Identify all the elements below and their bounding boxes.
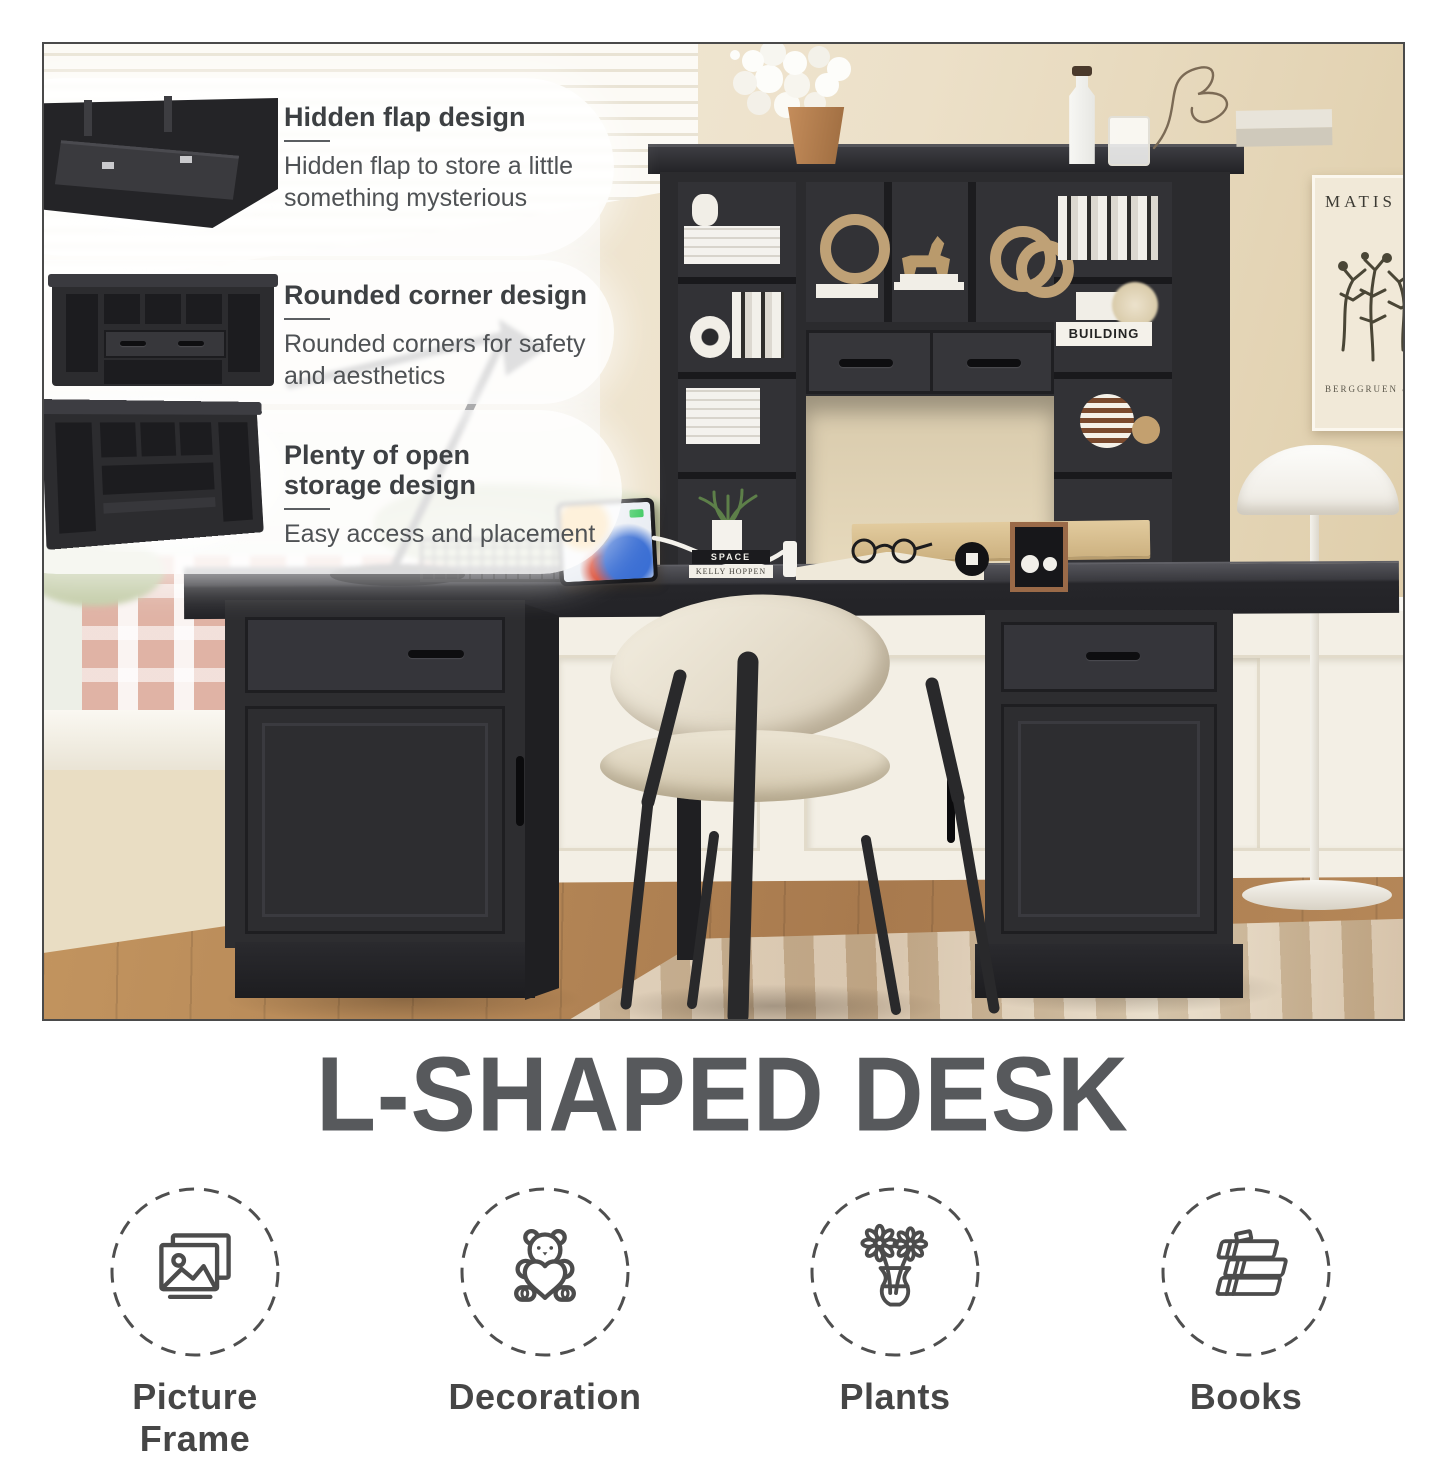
chair-frame <box>564 584 1024 1020</box>
feature-picture-frame: Picture Frame <box>75 1186 315 1460</box>
matisse-poster: MATIS BERGGRUEN & <box>1312 175 1405 431</box>
donut-vase <box>690 316 730 358</box>
babys-breath-flowers <box>730 50 740 60</box>
thumbnail-rounded-corner <box>44 268 282 392</box>
dashed-circle <box>809 1186 981 1358</box>
feature-plants: Plants <box>775 1186 1015 1418</box>
poster-subtitle: BERGGRUEN & <box>1325 384 1405 394</box>
charger-plug <box>783 541 797 577</box>
page-title: L-SHAPED DESK <box>22 1035 1424 1156</box>
divider <box>284 508 330 510</box>
drawer-handle <box>408 650 464 658</box>
stacked-books <box>1236 109 1332 129</box>
dashed-circle <box>459 1186 631 1358</box>
hinge <box>180 156 192 163</box>
callout-title: Plenty of open storage design <box>284 440 619 500</box>
callout-body: Rounded corners for safety and aesthetic… <box>284 329 619 392</box>
teddy-bear-icon <box>497 1222 593 1318</box>
callout-open-storage: Plenty of open storage design Easy acces… <box>284 440 619 551</box>
feature-label: Picture Frame <box>75 1376 315 1460</box>
dashed-circle <box>1160 1186 1332 1358</box>
picture-frame-icon <box>147 1222 243 1318</box>
pedestal-drawer <box>245 617 505 693</box>
drawer-handle <box>839 359 893 367</box>
white-vase <box>692 194 718 226</box>
gold-ring-sculpture <box>820 214 890 284</box>
floor-lamp-base <box>1242 880 1392 910</box>
radio-dial <box>1021 555 1039 573</box>
sculpture-base <box>816 284 878 298</box>
shelf-books <box>686 388 760 444</box>
wire-face-sculpture <box>1140 48 1240 154</box>
shelf-books <box>1058 196 1158 260</box>
door-handle <box>516 756 524 826</box>
book-spine: SPACE <box>692 550 770 564</box>
desk-clock <box>955 542 989 576</box>
radio-dial <box>1043 557 1057 571</box>
feature-decoration: Decoration <box>425 1186 665 1418</box>
drawer-handle <box>1086 652 1140 660</box>
divider <box>284 140 330 142</box>
poster-title: MATIS <box>1325 192 1396 212</box>
book-stack <box>894 282 964 290</box>
divider <box>284 318 330 320</box>
bottle-cap <box>1072 66 1092 76</box>
shelf-books <box>684 226 780 264</box>
book-spine: KELLY HOPPEN <box>689 565 773 578</box>
floor-lamp-shade <box>1237 445 1399 515</box>
hutch-drawers <box>806 330 1054 394</box>
building-decor-book: BUILDING <box>1056 322 1152 346</box>
callout-hidden-flap: Hidden flap design Hidden flap to store … <box>284 102 619 214</box>
striped-sphere-decor <box>1080 394 1134 448</box>
pedestal-plinth <box>235 942 535 998</box>
dashed-circle <box>109 1186 281 1358</box>
feature-label: Books <box>1126 1376 1366 1418</box>
drawer-handle <box>967 359 1021 367</box>
callout-body: Easy access and placement <box>284 519 619 551</box>
callout-rounded-corner: Rounded corner design Rounded corners fo… <box>284 280 619 392</box>
desk-left-pedestal <box>225 600 525 948</box>
plant-pot <box>712 520 742 550</box>
pedestal-side <box>525 604 559 1000</box>
room-photo: MATIS BERGGRUEN & <box>42 42 1405 1021</box>
thumbnail-open-storage <box>42 396 286 552</box>
pedestal-door <box>245 706 505 934</box>
gold-ball-decor <box>1132 416 1160 444</box>
flower-vase-icon <box>847 1222 943 1318</box>
callout-title: Hidden flap design <box>284 102 619 132</box>
pedestal-drawer <box>1001 622 1217 692</box>
pedestal-door <box>1001 704 1217 934</box>
hinge <box>102 162 114 169</box>
callout-body: Hidden flap to store a little something … <box>284 151 619 214</box>
feature-label: Plants <box>775 1376 1015 1418</box>
vintage-radio <box>1010 522 1068 592</box>
eyeglasses <box>840 536 936 566</box>
feature-label: Decoration <box>425 1376 665 1418</box>
book-stack <box>900 274 958 282</box>
feature-books: Books <box>1126 1186 1366 1418</box>
battery-icon <box>629 509 643 518</box>
callout-title: Rounded corner design <box>284 280 619 310</box>
shelf-books <box>732 292 784 358</box>
poster-botanical-art <box>1323 230 1405 378</box>
books-icon <box>1198 1222 1294 1318</box>
thumbnail-hidden-flap <box>44 90 278 238</box>
